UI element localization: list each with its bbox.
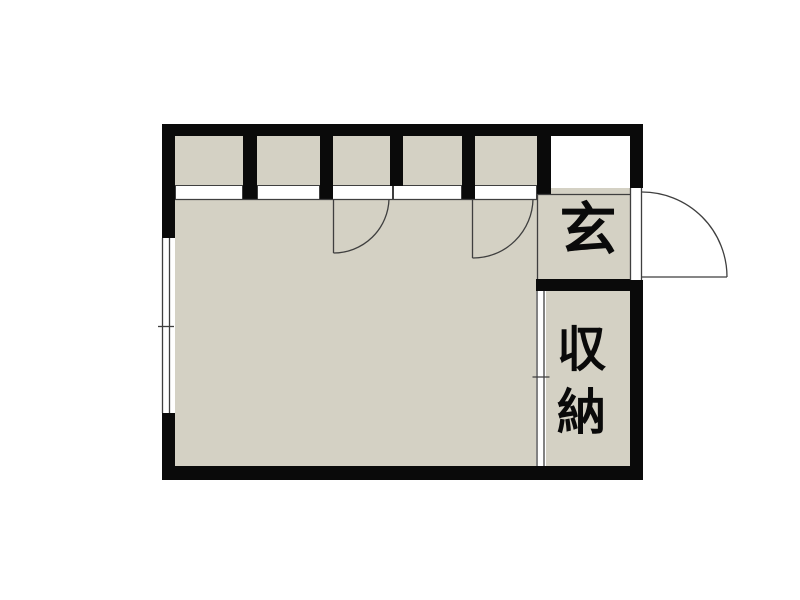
closet-slot-3 [327,185,393,200]
closet-cell-4 [403,136,462,186]
closet-slot-4 [393,185,462,200]
genkan-label: 玄 [556,200,620,260]
closet-divider-2 [320,136,333,199]
closet-divider-3 [390,136,403,186]
closet-cell-5 [475,136,537,186]
genkan-storage-wall [536,279,643,291]
closet-slot-5 [473,185,537,200]
entry-door-swing-arc [642,192,727,277]
storage-label: 収納 [561,306,613,466]
window-opening [162,238,175,413]
closet-cell-1 [175,136,243,186]
main-room-floor [175,198,537,466]
closet-slot-1 [175,185,243,200]
closet-divider-4 [462,136,475,199]
wall-right-lower [630,280,643,480]
closet-slot-2 [257,185,320,200]
floorplan-canvas: 玄 収納 [0,0,800,600]
wall-right-upper [630,124,643,188]
closet-cell-3 [333,136,390,186]
closet-cell-2 [257,136,320,186]
entry-door-opening [630,188,643,280]
wall-left-upper [162,124,175,238]
closet-divider-1 [243,136,257,199]
wall-top [162,124,643,136]
closet-divider-5 [537,136,551,194]
wall-bottom [162,466,643,480]
